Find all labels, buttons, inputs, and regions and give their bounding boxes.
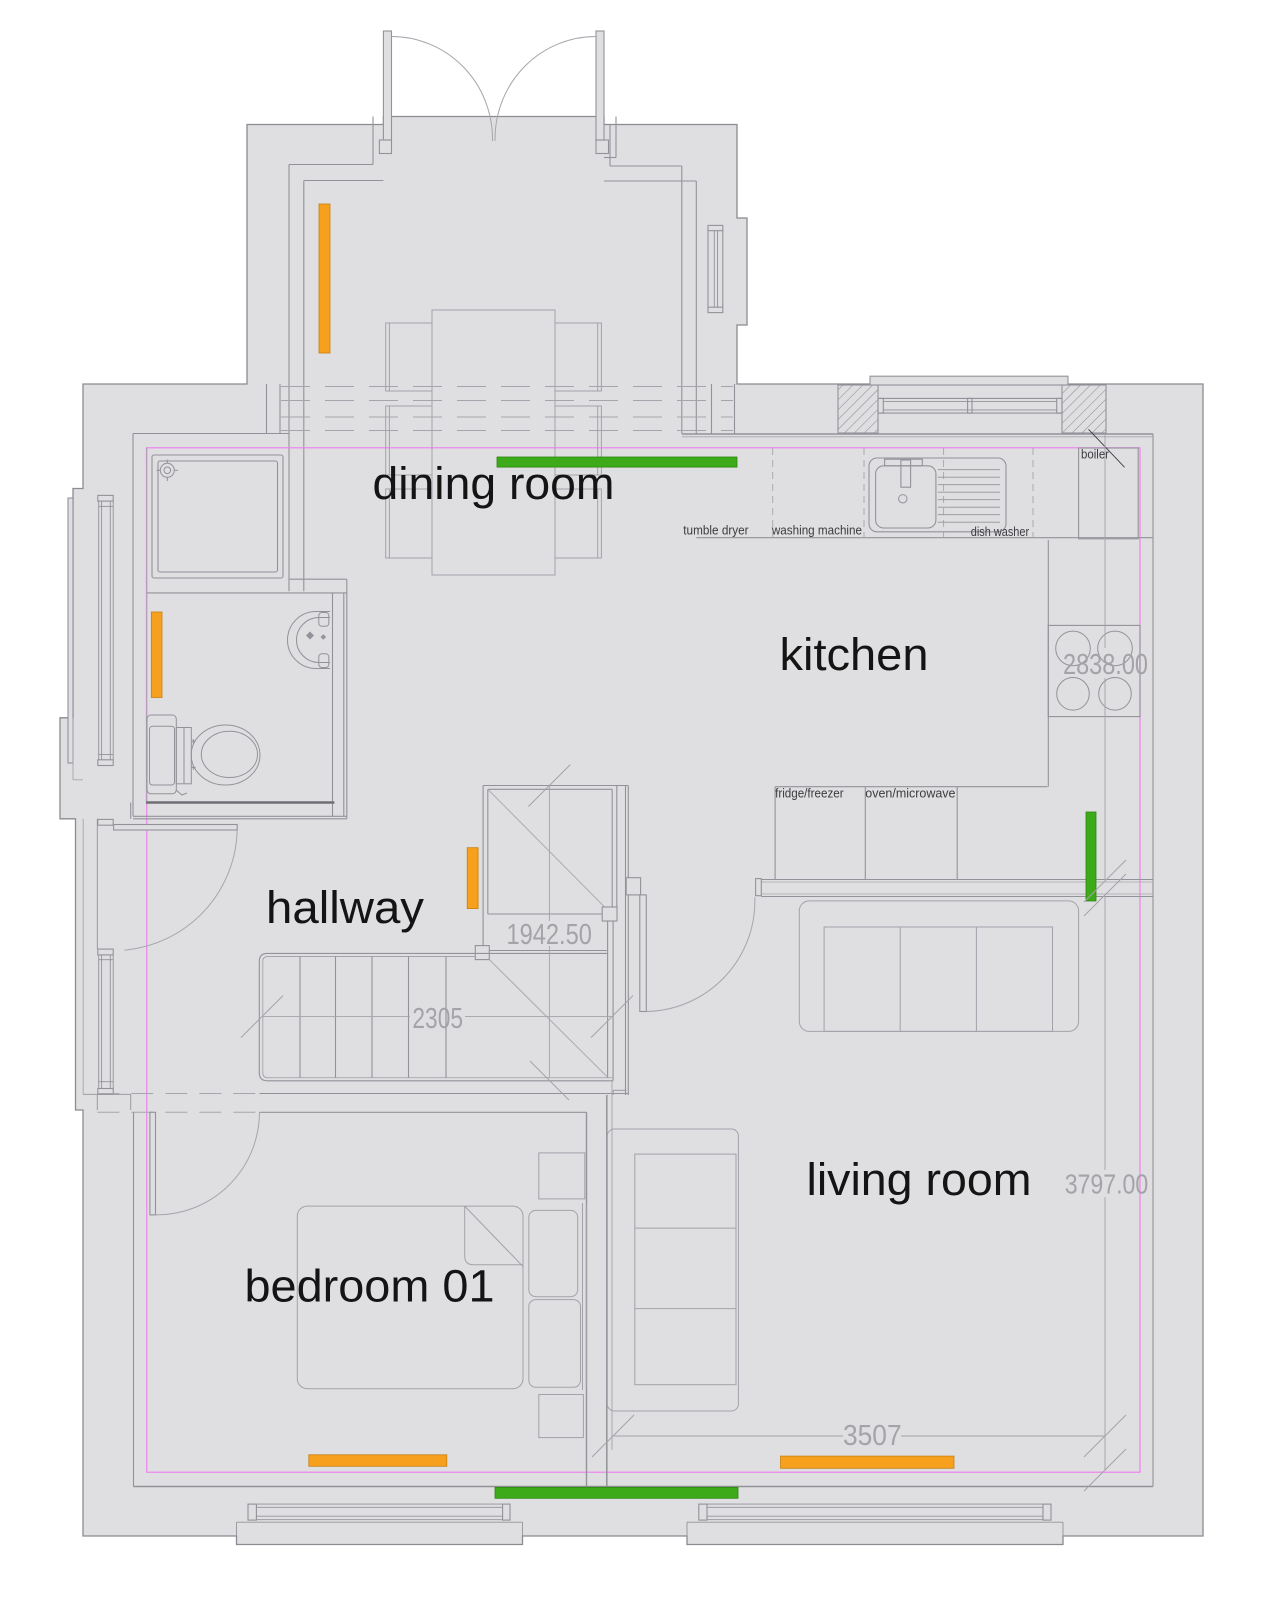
svg-text:tumble dryer: tumble dryer: [683, 523, 749, 538]
svg-text:3797.00: 3797.00: [1065, 1168, 1149, 1199]
svg-text:2838.00: 2838.00: [1063, 649, 1148, 681]
svg-text:bedroom 01: bedroom 01: [245, 1261, 495, 1312]
svg-text:kitchen: kitchen: [780, 629, 929, 680]
svg-text:living room: living room: [807, 1154, 1032, 1205]
svg-text:washing machine: washing machine: [771, 523, 862, 538]
svg-text:2305: 2305: [412, 1003, 463, 1035]
svg-text:dining room: dining room: [373, 458, 615, 509]
svg-text:hallway: hallway: [266, 882, 425, 933]
svg-text:dish washer: dish washer: [971, 524, 1030, 539]
svg-text:3507: 3507: [843, 1420, 902, 1452]
svg-text:fridge/freezer: fridge/freezer: [775, 785, 844, 800]
svg-text:oven/microwave: oven/microwave: [865, 785, 955, 800]
svg-text:1942.50: 1942.50: [507, 919, 592, 951]
